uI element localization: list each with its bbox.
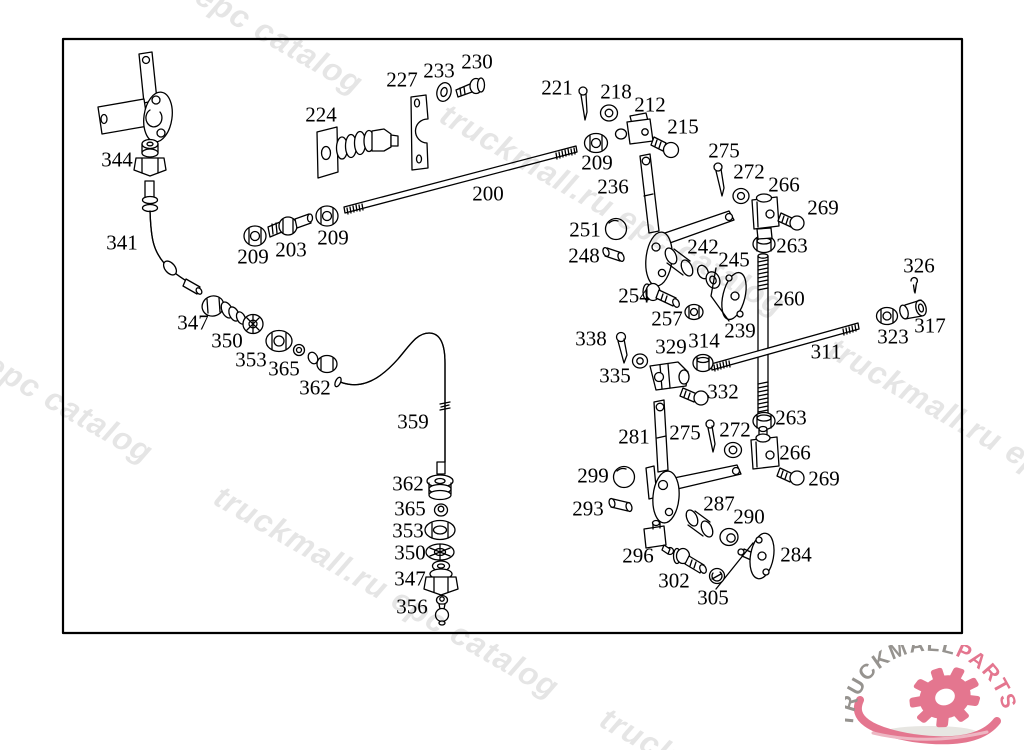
parts-diagram-page: truckmall.ru epc catalogtruckmall.ru epc… <box>0 0 1024 750</box>
part-251-248-drawing <box>602 219 627 263</box>
part-347-362-row-drawing <box>199 293 337 373</box>
part-281-lever-drawing <box>608 400 741 524</box>
part-260-263-drawing <box>753 236 775 430</box>
part-344-drawing <box>134 140 166 177</box>
part-227-233-230-drawing <box>411 78 485 170</box>
part-bottom-column-drawing <box>424 462 458 625</box>
part-209-203-row-drawing <box>244 206 338 246</box>
part-359-pipe-drawing <box>334 333 450 462</box>
part-338-335-329-314-332-drawing <box>617 333 714 406</box>
exploded-parts-drawing <box>0 0 1024 750</box>
part-200-rod-drawing <box>344 146 577 214</box>
part-275-272-266-269-upper-drawing <box>714 163 804 239</box>
part-341-drawing <box>143 181 204 295</box>
part-221-218-212-215-drawing <box>579 87 679 158</box>
bracket-drawing <box>98 52 175 144</box>
part-224-drawing <box>317 127 398 178</box>
truckmall-parts-logo: TRUCKMALLPARTS <box>845 645 1020 750</box>
